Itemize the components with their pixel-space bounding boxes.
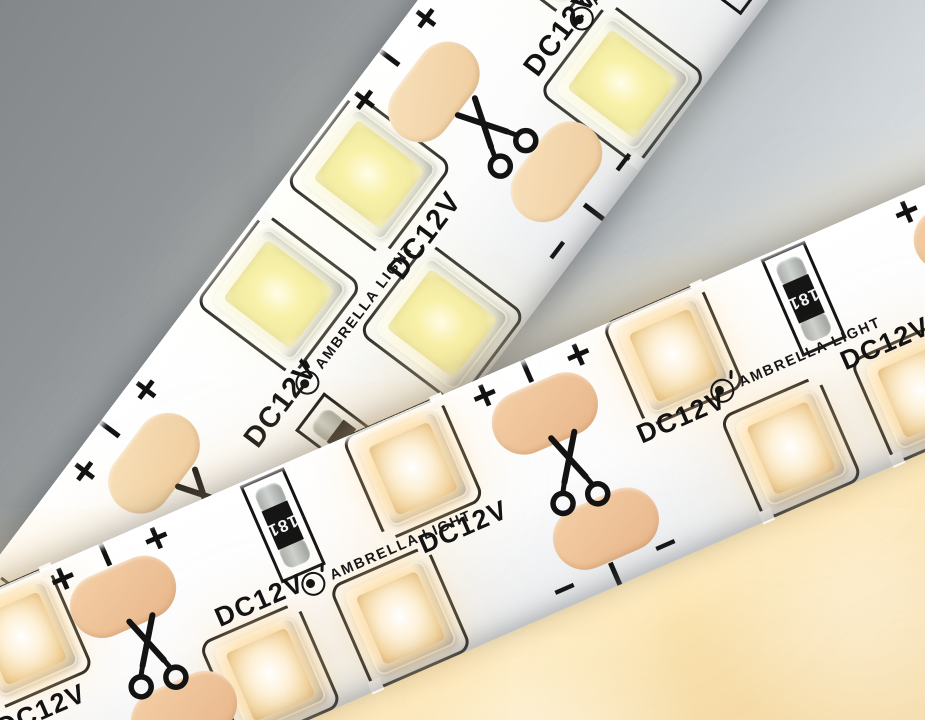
minus-mark: − bbox=[534, 229, 580, 272]
cut-tick bbox=[98, 420, 120, 438]
minus-mark: − bbox=[647, 522, 684, 568]
cut-tick bbox=[520, 359, 534, 383]
plus-mark: + bbox=[121, 367, 172, 414]
resistor: 181 bbox=[774, 254, 834, 344]
cut-tick bbox=[378, 49, 400, 67]
led bbox=[733, 389, 849, 508]
plus-mark: + bbox=[60, 448, 111, 495]
brand-label: AMBRELLA LIGHT bbox=[587, 0, 692, 8]
scissors-cut-icon bbox=[109, 606, 195, 711]
plus-mark: + bbox=[464, 371, 505, 422]
scissors-cut-icon bbox=[531, 423, 617, 528]
resistor-silkscreen-bracket bbox=[699, 0, 770, 15]
plus-mark: + bbox=[401, 0, 452, 42]
resistor: 181 bbox=[670, 0, 756, 1]
product-photo-led-strips: 181181181DC12VDC12V++−−DC12VDC12V++−−DC1… bbox=[0, 0, 925, 720]
cut-tick bbox=[98, 543, 112, 567]
minus-mark: − bbox=[546, 566, 583, 612]
resistor: 181 bbox=[253, 480, 313, 570]
cut-tick bbox=[608, 562, 622, 586]
plus-mark: + bbox=[886, 187, 925, 238]
cut-tick bbox=[583, 203, 605, 221]
